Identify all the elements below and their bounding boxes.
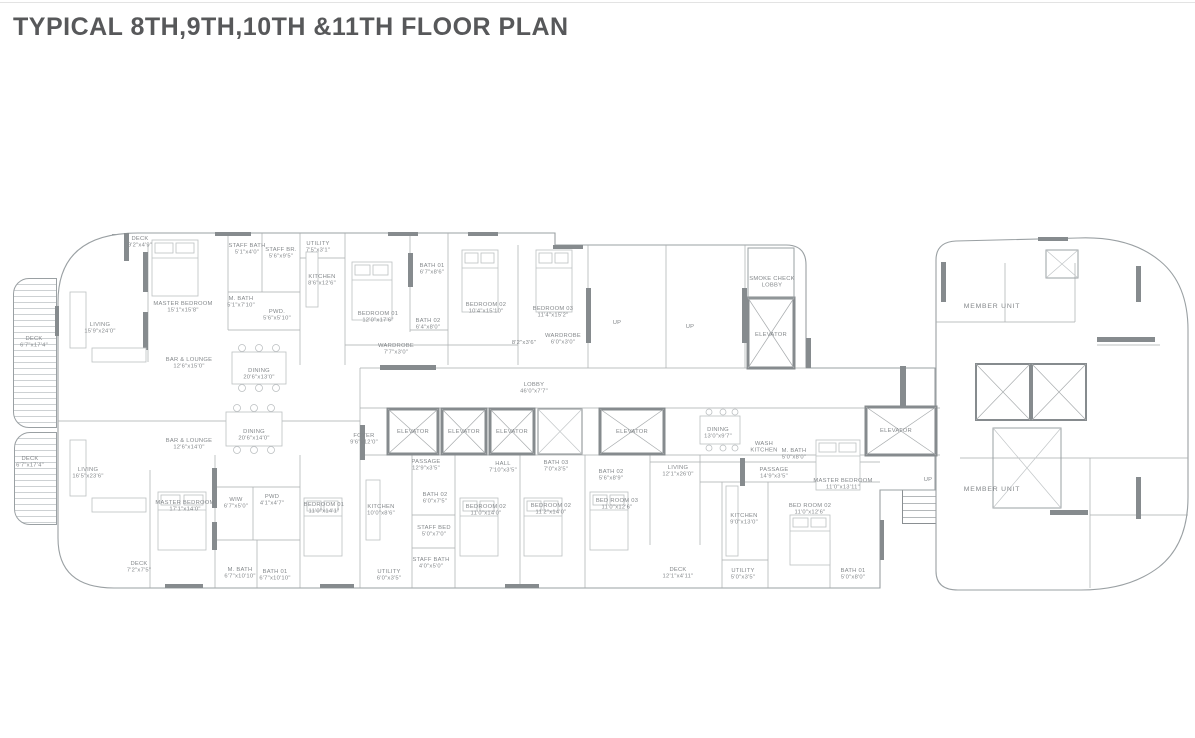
room-label: M. BATH5'0"x8'0" [782,448,807,461]
room-label: FOYER9'6"x12'0" [350,433,378,446]
room-label: BEDROOM 0210'4"x15'10" [466,302,507,315]
room-label: 8'2"x3'6" [512,340,536,346]
room-label: UP [924,477,933,483]
floor-plan-drawing: DECK9'2"x4'9"STAFF BATH5'1"x4'0"STAFF BR… [0,0,1195,738]
room-label: BED ROOM 0311'0"x12'6" [596,498,638,511]
room-label: UP [686,324,695,330]
room-label: BEDROOM 0311'4"x15'2" [533,306,574,319]
room-label: BATH 016'7"x8'6" [420,263,445,276]
room-label: BATH 025'6"x8'9" [599,469,624,482]
room-label: BATH 026'0"x7'5" [423,492,448,505]
room-label: BEDROOM 0211'0"x14'0" [466,504,507,517]
room-label: MEMBER UNIT [964,303,1020,310]
room-label: ELEVATOR [496,429,528,435]
room-label: BATH 037'0"x3'5" [544,460,569,473]
room-label: BEDROOM 0211'2"x14'0" [531,503,572,516]
room-label: BATH 026'4"x8'0" [416,318,441,331]
room-label: UTILITY7'5"x3'1" [306,241,330,254]
room-label: UTILITY6'0"x3'5" [377,569,401,582]
room-label: BATH 016'7"x10'10" [259,569,290,582]
room-label: BEDROOM 0112'0"x17'6" [358,311,399,324]
room-label: ELEVATOR [755,332,787,338]
room-label: KITCHEN10'0"x8'6" [367,504,395,517]
room-label: KITCHEN8'6"x12'6" [308,274,336,287]
room-label: STAFF BED5'0"x7'0" [417,525,451,538]
room-label: ELEVATOR [616,429,648,435]
room-label: PASSAGE12'9"x3'5" [411,459,440,472]
room-label: PASSAGE14'9"x3'5" [759,467,788,480]
right-wing-outline [936,238,1188,590]
bed [152,240,198,296]
room-label: STAFF BR.5'6"x9'5" [265,247,297,260]
room-label: ELEVATOR [880,428,912,434]
room-label: BATH 015'0"x8'0" [841,568,866,581]
bed [790,515,830,565]
room-label: ELEVATOR [448,429,480,435]
bed [536,250,572,312]
room-label: DECK7'2"x7'5" [127,561,151,574]
room-label: M. BATH5'1"x7'10" [227,296,255,309]
room-label: DINING13'0"x9'7" [704,427,732,440]
room-label: LOBBY46'0"x7'7" [520,382,548,395]
room-label: UTILITY5'0"x3'5" [731,568,755,581]
room-label: ELEVATOR [397,429,429,435]
room-label: M. BATH6'7"x10'10" [224,567,255,580]
room-label: UP [613,320,622,326]
room-label: BEDROOM 0111'0"x14'1" [304,502,345,515]
room-label: KITCHEN9'0"x13'0" [730,513,758,526]
room-label: DECK6'7"x17'4" [20,336,48,349]
room-label: MEMBER UNIT [964,486,1020,493]
page: TYPICAL 8TH,9TH,10TH &11TH FLOOR PLAN [0,0,1195,738]
room-label: DECK9'2"x4'9" [128,236,152,249]
room-label: BED ROOM 0211'0"x12'6" [789,503,831,516]
room-label: DECK6'7"x17'4" [16,456,44,469]
